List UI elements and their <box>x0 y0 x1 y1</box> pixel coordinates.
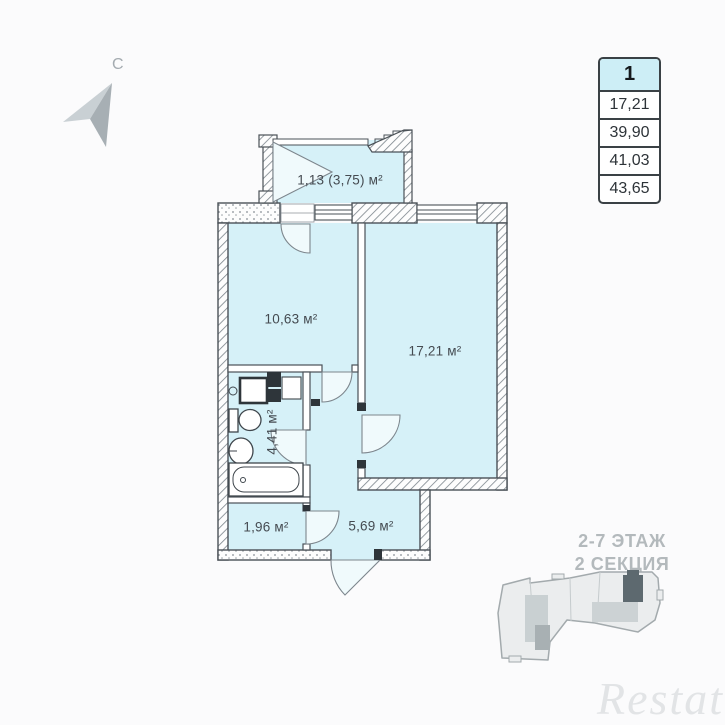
mark-living-door-bottom <box>357 460 366 468</box>
vent-duct-1 <box>267 372 281 387</box>
building-unit-bump <box>627 570 639 575</box>
room-label-living-room: 17,21 м² <box>409 344 462 359</box>
washer-spot <box>282 377 301 399</box>
wall-top-right-corner <box>477 203 507 223</box>
vent-shaft-box <box>240 378 267 403</box>
wall-left <box>218 223 228 560</box>
watermark-logo: Restate <box>597 672 725 725</box>
wall-bathroom-right-lower <box>303 465 310 497</box>
wall-bottom-left <box>218 550 331 560</box>
kitchen-window <box>315 205 352 220</box>
wall-kitchen-bottom <box>228 365 322 372</box>
building-bump-2 <box>552 574 564 579</box>
wall-kitchen-living-low <box>358 468 365 478</box>
room-label-hallway: 5,69 м² <box>348 519 393 534</box>
room-label-bathroom: 4,41 м² <box>265 409 280 454</box>
building-bump-3 <box>657 590 663 600</box>
vent-duct-2 <box>267 389 281 402</box>
loggia-glazing <box>273 139 368 145</box>
wall-top-middle <box>352 203 417 223</box>
wall-storage-right-lower <box>303 544 310 550</box>
wall-right <box>497 223 507 490</box>
room-label-kitchen: 10,63 м² <box>265 312 318 327</box>
mark-hall-top <box>311 399 320 406</box>
mark-living-door-top <box>357 403 366 411</box>
wall-storage-top <box>228 497 310 503</box>
door-entrance <box>331 560 380 595</box>
wall-kitchen-living <box>358 223 365 403</box>
building-core-left-dark <box>535 625 550 650</box>
room-label-storage: 1,96 м² <box>243 520 288 535</box>
building-core-right <box>592 602 638 622</box>
toilet-bowl <box>239 410 261 431</box>
wall-living-bottom <box>358 478 507 490</box>
wall-top-left-corner <box>218 203 280 223</box>
building-plan-minimap <box>497 570 672 670</box>
building-bump-1 <box>509 656 521 662</box>
building-highlighted-unit <box>623 575 643 602</box>
wall-kitchen-bottom-right <box>352 365 358 372</box>
floor-range-label: 2-7 ЭТАЖ <box>578 531 666 552</box>
mark-storage-door <box>303 505 310 511</box>
wall-bathroom-right-upper <box>303 372 310 430</box>
wall-bottom-right <box>380 550 430 560</box>
toilet-tank <box>229 409 238 432</box>
mark-entrance-jamb <box>374 549 382 560</box>
living-room-window <box>417 205 477 220</box>
loggia-right-wall <box>404 150 412 203</box>
room-label-loggia: 1,13 (3,75) м² <box>297 173 383 188</box>
door-gap-entrance <box>331 548 380 560</box>
floor-plan-page: С 1 17,21 39,90 41,03 43,65 <box>0 0 725 725</box>
